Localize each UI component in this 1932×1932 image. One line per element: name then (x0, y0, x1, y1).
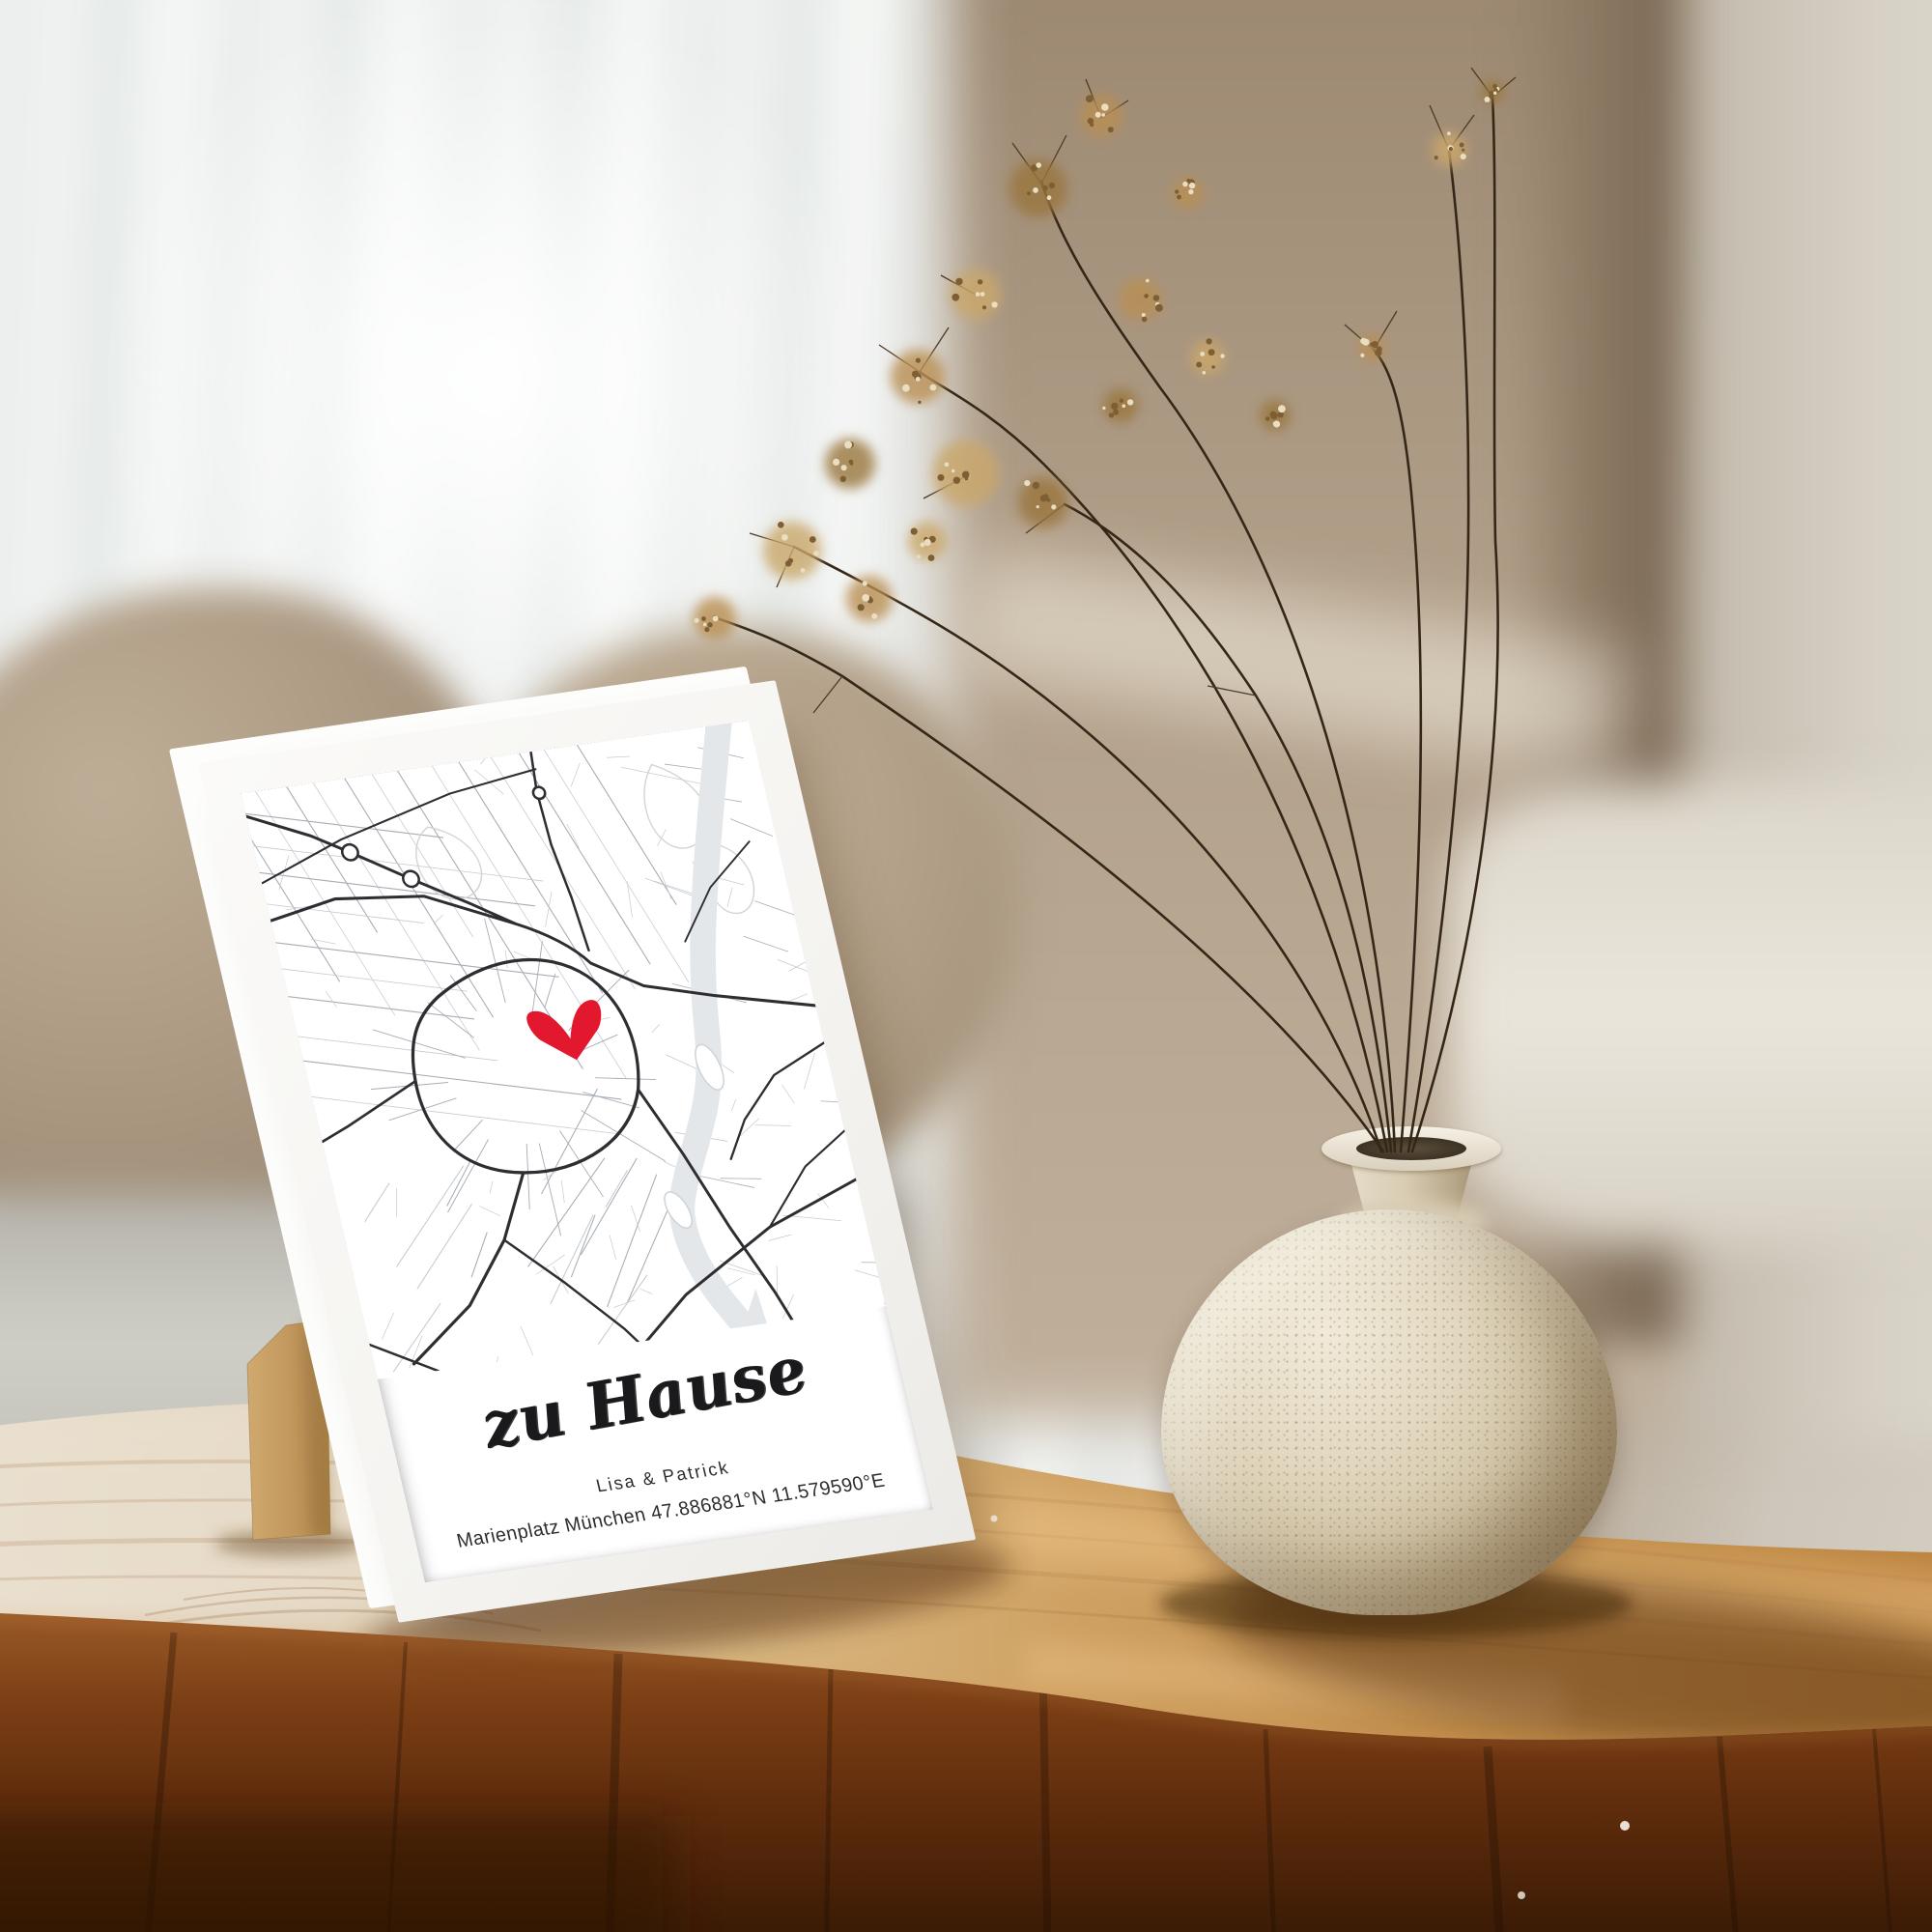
living-room-scene: zu Hause Lisa & Patrick Marienplatz Münc… (0, 0, 1932, 1932)
flower-stems (717, 97, 1498, 1151)
dried-flowers (0, 0, 1932, 1932)
